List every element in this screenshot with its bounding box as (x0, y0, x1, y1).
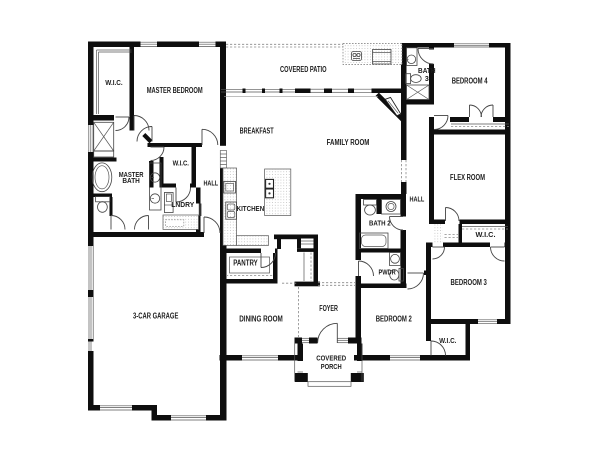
svg-text:BATH: BATH (122, 178, 140, 185)
svg-text:BEDROOM 4: BEDROOM 4 (452, 76, 488, 85)
svg-text:FOYER: FOYER (319, 304, 338, 313)
svg-text:W.I.C.: W.I.C. (439, 338, 456, 345)
svg-text:LNDRY: LNDRY (171, 202, 194, 209)
svg-text:KITCHEN: KITCHEN (237, 206, 265, 213)
svg-text:BATH: BATH (418, 68, 436, 75)
svg-text:MASTER BEDROOM: MASTER BEDROOM (147, 86, 203, 95)
svg-text:3-CAR GARAGE: 3-CAR GARAGE (133, 312, 179, 321)
svg-text:W.I.C.: W.I.C. (105, 80, 122, 87)
svg-text:DINING ROOM: DINING ROOM (239, 314, 283, 323)
svg-text:BEDROOM 3: BEDROOM 3 (451, 278, 488, 287)
svg-text:PANTRY: PANTRY (233, 259, 258, 268)
svg-text:W.I.C.: W.I.C. (173, 161, 189, 168)
svg-text:BEDROOM 2: BEDROOM 2 (376, 315, 413, 324)
svg-text:HALL: HALL (410, 196, 425, 203)
svg-text:COVERED PATIO: COVERED PATIO (280, 65, 327, 74)
svg-text:W.I.C.: W.I.C. (476, 232, 496, 239)
svg-text:HALL: HALL (203, 180, 218, 187)
svg-text:BREAKFAST: BREAKFAST (240, 127, 274, 136)
svg-text:FAMILY ROOM: FAMILY ROOM (327, 138, 370, 147)
svg-text:COVERED: COVERED (316, 356, 346, 363)
svg-text:PORCH: PORCH (321, 364, 342, 371)
svg-text:FLEX ROOM: FLEX ROOM (450, 173, 485, 182)
svg-text:PWDR: PWDR (378, 270, 395, 277)
svg-text:3: 3 (425, 76, 429, 83)
svg-text:BATH 2: BATH 2 (369, 221, 391, 228)
